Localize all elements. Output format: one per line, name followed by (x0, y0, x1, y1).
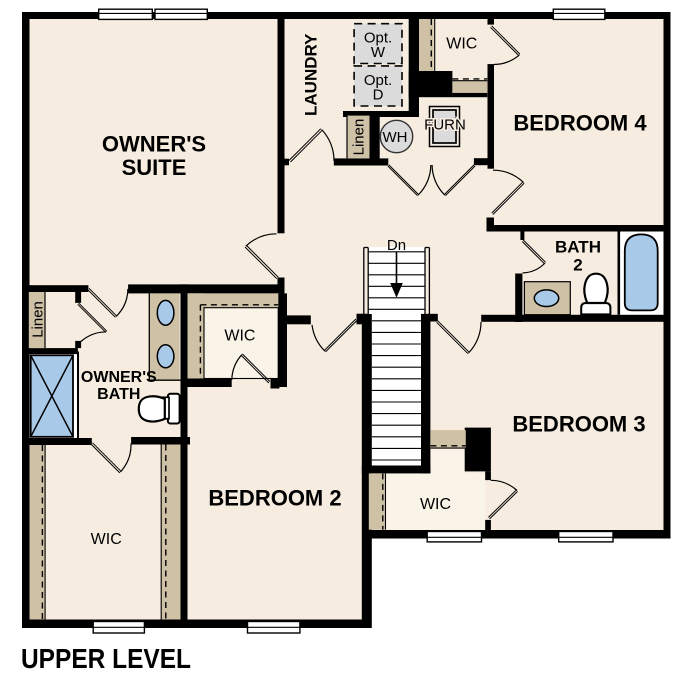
svg-text:Linen: Linen (351, 119, 368, 156)
svg-text:OWNER'S: OWNER'S (81, 369, 157, 386)
svg-text:BEDROOM 2: BEDROOM 2 (208, 486, 341, 511)
svg-text:Dn: Dn (387, 237, 406, 254)
svg-text:BATH: BATH (97, 386, 140, 403)
svg-text:UPPER LEVEL: UPPER LEVEL (21, 643, 191, 674)
svg-text:WH: WH (383, 129, 408, 146)
svg-text:WIC: WIC (420, 496, 451, 513)
svg-text:SUITE: SUITE (122, 155, 187, 180)
svg-text:OWNER'S: OWNER'S (102, 132, 206, 157)
svg-text:BATH: BATH (555, 237, 601, 256)
svg-text:D: D (373, 86, 384, 103)
svg-text:BEDROOM 3: BEDROOM 3 (512, 412, 645, 437)
svg-text:W: W (371, 44, 386, 61)
svg-text:WIC: WIC (91, 531, 122, 548)
svg-text:2: 2 (573, 255, 582, 274)
svg-text:BEDROOM 4: BEDROOM 4 (513, 111, 647, 136)
svg-text:WIC: WIC (446, 35, 477, 52)
svg-text:Linen: Linen (30, 301, 47, 338)
svg-text:LAUNDRY: LAUNDRY (302, 33, 321, 116)
svg-text:WIC: WIC (224, 328, 255, 345)
svg-text:FURN: FURN (424, 117, 466, 134)
